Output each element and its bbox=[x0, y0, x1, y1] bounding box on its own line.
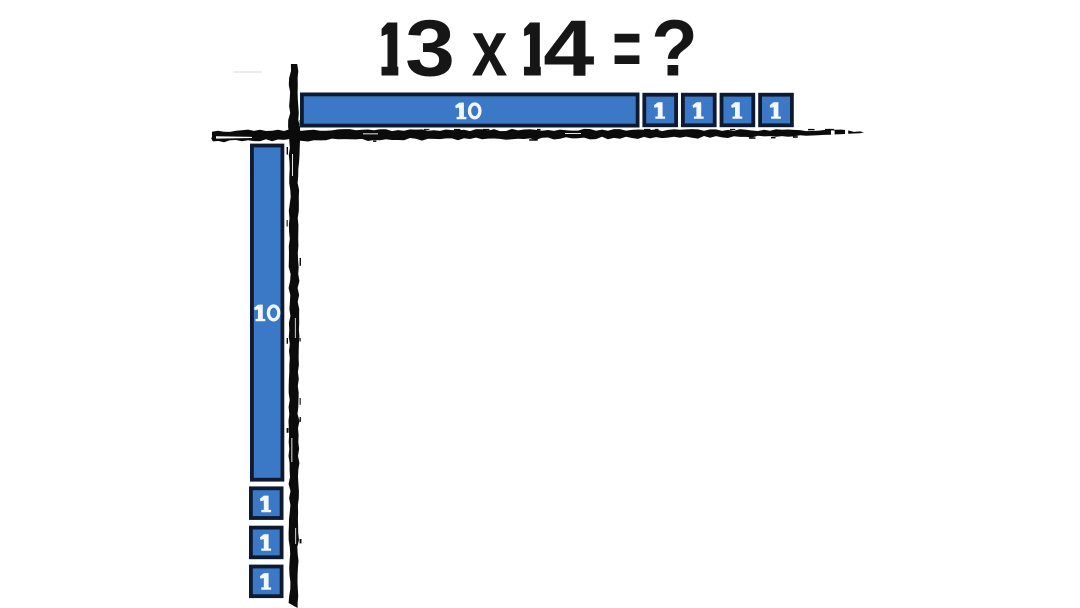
svg-text:=: = bbox=[613, 5, 642, 94]
svg-text:x: x bbox=[472, 4, 508, 93]
svg-text:?: ? bbox=[651, 3, 697, 93]
svg-text:4: 4 bbox=[543, 4, 594, 93]
svg-text:3: 3 bbox=[405, 3, 455, 92]
